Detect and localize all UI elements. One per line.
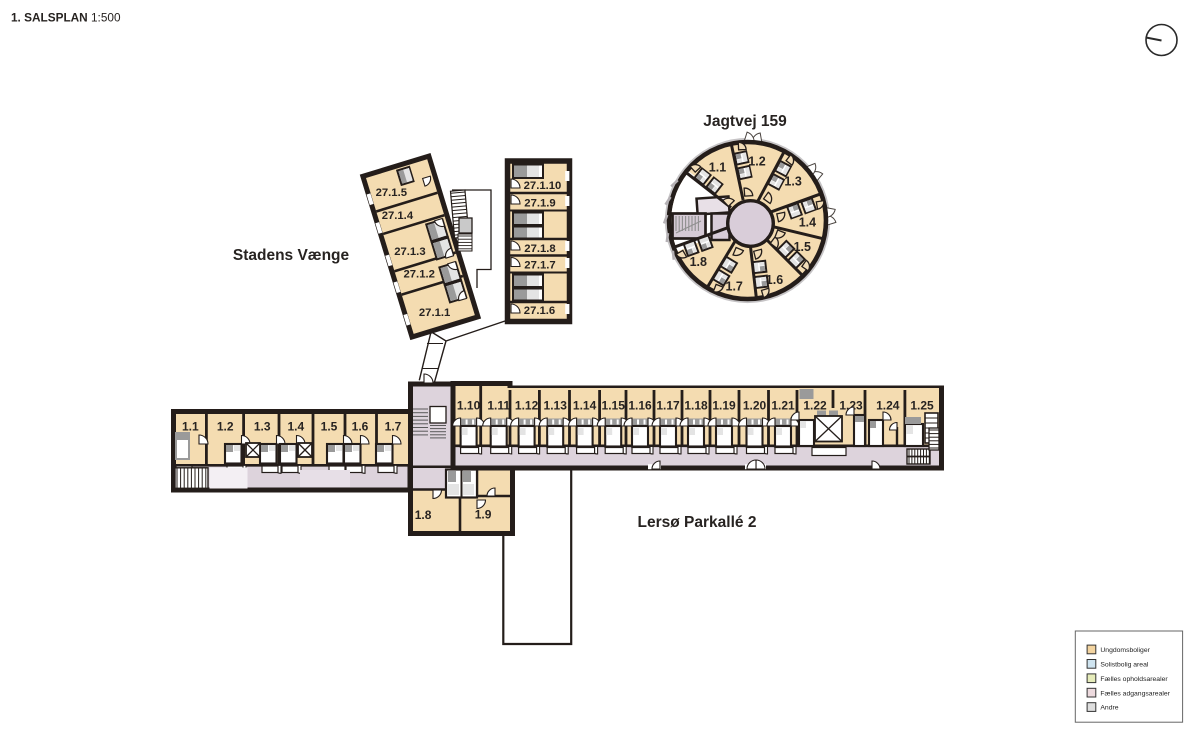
svg-text:1.4: 1.4 [287,420,304,434]
svg-text:27.1.7: 27.1.7 [524,260,555,272]
svg-text:1.15: 1.15 [602,399,626,413]
svg-text:Ungdomsboliger: Ungdomsboliger [1100,647,1150,654]
svg-text:27.1.2: 27.1.2 [403,269,434,281]
svg-text:1. SALSPLAN 1:500: 1. SALSPLAN 1:500 [11,11,121,25]
svg-text:1.19: 1.19 [712,399,736,413]
svg-text:1.9: 1.9 [475,508,492,522]
svg-text:27.1.5: 27.1.5 [376,187,407,199]
svg-text:Fælles opholdsarealer: Fælles opholdsarealer [1100,676,1168,683]
svg-text:1.3: 1.3 [254,420,271,434]
svg-text:Lersø Parkallé 2: Lersø Parkallé 2 [638,514,757,531]
svg-text:27.1.9: 27.1.9 [524,198,555,210]
svg-text:1.10: 1.10 [457,399,481,413]
svg-text:1.5: 1.5 [321,420,338,434]
svg-text:1.7: 1.7 [726,280,743,294]
svg-text:1.22: 1.22 [803,399,827,413]
svg-text:1.17: 1.17 [656,399,680,413]
svg-text:1.3: 1.3 [784,175,801,189]
svg-text:1.13: 1.13 [544,399,568,413]
svg-text:1.11: 1.11 [487,399,510,413]
svg-text:1.14: 1.14 [573,399,597,413]
svg-text:1.8: 1.8 [690,255,707,269]
svg-text:27.1.1: 27.1.1 [419,307,450,319]
svg-text:1.16: 1.16 [628,399,652,413]
svg-text:1.12: 1.12 [515,399,539,413]
svg-text:1.21: 1.21 [771,399,795,413]
svg-text:1.1: 1.1 [182,420,199,434]
svg-text:1.4: 1.4 [799,216,816,230]
svg-text:27.1.8: 27.1.8 [524,243,555,255]
svg-text:1.24: 1.24 [876,399,900,413]
svg-text:1.18: 1.18 [684,399,708,413]
svg-text:Jagtvej 159: Jagtvej 159 [703,113,787,130]
svg-text:27.1.10: 27.1.10 [524,180,562,192]
svg-text:27.1.4: 27.1.4 [382,210,414,222]
svg-text:1.25: 1.25 [910,399,934,413]
svg-text:Solistbolig areal: Solistbolig areal [1100,662,1148,669]
svg-text:1.2: 1.2 [748,155,765,169]
svg-text:Fælles adgangsarealer: Fælles adgangsarealer [1100,690,1170,697]
svg-text:1.20: 1.20 [743,399,767,413]
svg-text:1.2: 1.2 [217,420,234,434]
svg-text:1.1: 1.1 [709,161,726,175]
svg-text:1.8: 1.8 [415,508,432,522]
svg-text:Stadens Vænge: Stadens Vænge [233,247,350,264]
svg-text:Andre: Andre [1100,705,1118,712]
svg-text:1.7: 1.7 [385,420,402,434]
svg-text:27.1.3: 27.1.3 [394,246,425,258]
svg-text:1.6: 1.6 [352,420,369,434]
svg-text:27.1.6: 27.1.6 [524,305,555,317]
